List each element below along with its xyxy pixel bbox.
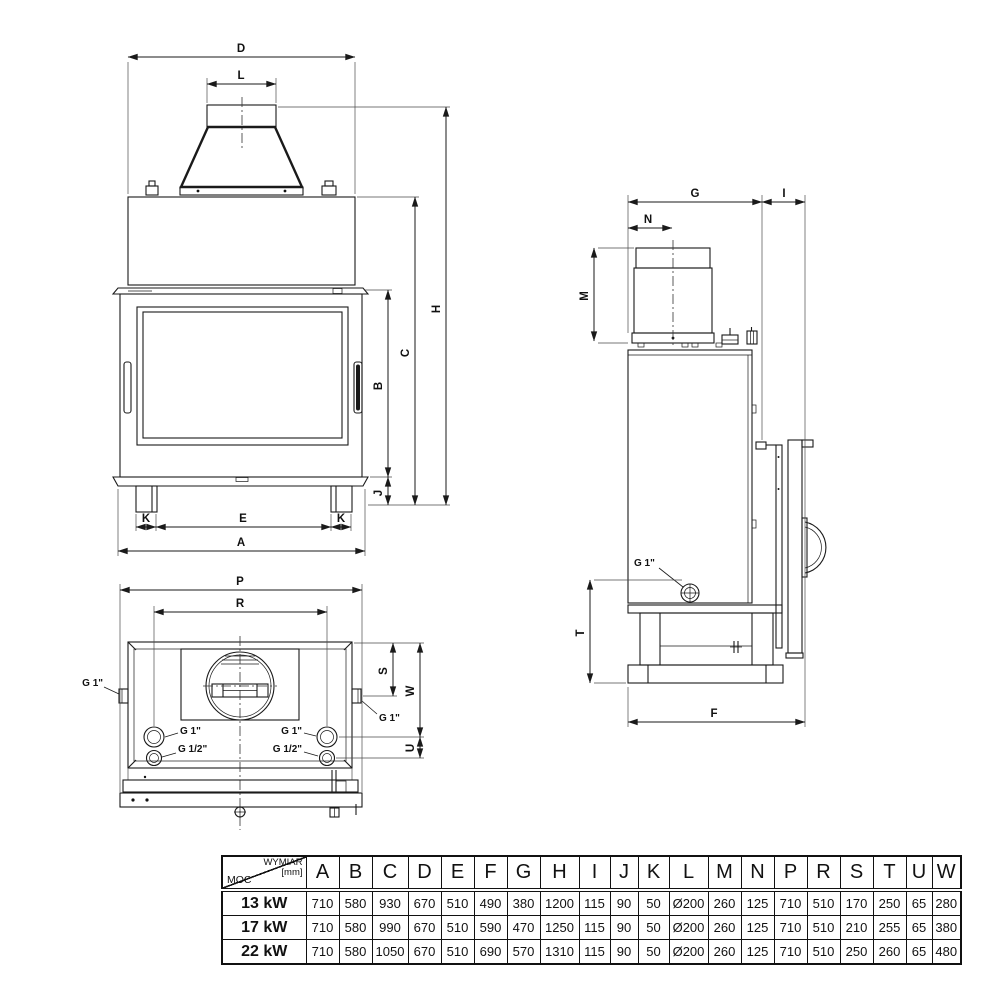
dim-value-cell: 260: [873, 940, 906, 965]
dim-value-cell: 260: [708, 940, 741, 965]
dim-label-n: N: [644, 214, 652, 226]
port-label-g1-right-outer: G 1": [379, 713, 400, 724]
dim-label-s: S: [378, 667, 390, 675]
door-side: [756, 440, 826, 658]
flue-collar-front: [207, 105, 276, 127]
dim-value-cell: Ø200: [669, 940, 708, 965]
technical-drawing-page: D L H C B J K E K A: [0, 0, 1000, 1000]
dim-label-m: M: [579, 291, 591, 301]
dim-col-header-j: J: [610, 856, 638, 890]
dim-value-cell: 930: [372, 890, 408, 916]
dim-value-cell: 710: [306, 916, 339, 940]
dim-value-cell: 510: [807, 940, 840, 965]
dimension-table: WYMIAR [mm] MOC ABCDEFGHIJKLMNPRSTUW 13 …: [221, 855, 962, 965]
dim-col-header-l: L: [669, 856, 708, 890]
port-label-g1-side: G 1": [634, 558, 655, 569]
leg-left: [136, 486, 157, 512]
top-lug-right: [322, 181, 336, 195]
power-row-label: 17 kW: [222, 916, 306, 940]
dim-value-cell: 125: [741, 940, 774, 965]
dim-label-i: I: [782, 188, 785, 200]
dim-value-cell: 580: [339, 940, 372, 965]
dim-value-cell: 125: [741, 890, 774, 916]
dim-label-k-right: K: [337, 513, 346, 525]
dim-value-cell: 250: [873, 890, 906, 916]
top-lug-left: [146, 181, 158, 195]
dim-value-cell: 1200: [540, 890, 579, 916]
top-view: G 1" G 1" G 1" G 1/2" G 1" G 1/2": [82, 576, 424, 830]
front-port-g1-left: [144, 727, 164, 747]
dim-value-cell: 380: [507, 890, 540, 916]
dim-label-c: C: [400, 349, 412, 357]
front-port-g12-right: [320, 751, 335, 766]
dim-value-cell: 510: [441, 940, 474, 965]
dim-value-cell: 710: [306, 940, 339, 965]
dim-value-cell: 990: [372, 916, 408, 940]
dim-table-row: 22 kW710580105067051069057013101159050Ø2…: [222, 940, 961, 965]
return-port-g1: [681, 584, 699, 602]
top-view-dimensions: P R S W U: [120, 576, 424, 792]
door-handle-side: [802, 518, 826, 577]
front-plate-top: [123, 780, 358, 792]
flue-funnel: [181, 127, 302, 187]
door-hinge-pin: [802, 440, 813, 447]
dim-value-cell: 65: [906, 916, 932, 940]
dim-value-cell: 90: [610, 916, 638, 940]
dim-value-cell: 260: [708, 890, 741, 916]
bottom-center-fitting: [234, 806, 246, 818]
dim-value-cell: 90: [610, 940, 638, 965]
dim-value-cell: 510: [807, 890, 840, 916]
port-label-g12-left: G 1/2": [178, 744, 207, 755]
front-view-dimensions: D L H C B J K E K A: [118, 43, 450, 556]
dim-col-header-r: R: [807, 856, 840, 890]
dim-label-r: R: [236, 598, 245, 610]
dim-value-cell: 590: [474, 916, 507, 940]
dim-value-cell: 570: [507, 940, 540, 965]
dim-value-cell: 510: [441, 916, 474, 940]
dim-col-header-u: U: [906, 856, 932, 890]
dim-label-j: J: [373, 490, 385, 496]
port-label-g1-right-inner: G 1": [281, 726, 302, 737]
leg-right: [331, 486, 352, 512]
dim-value-cell: Ø200: [669, 890, 708, 916]
dim-col-header-n: N: [741, 856, 774, 890]
dim-col-header-f: F: [474, 856, 507, 890]
dim-label-w: W: [405, 685, 417, 696]
dim-value-cell: 480: [932, 940, 961, 965]
dim-value-cell: 470: [507, 916, 540, 940]
pedestal-side: [640, 613, 773, 665]
side-view: G 1": [575, 188, 826, 727]
dim-col-header-m: M: [708, 856, 741, 890]
dim-col-header-g: G: [507, 856, 540, 890]
dim-value-cell: 510: [807, 916, 840, 940]
dim-label-k-left: K: [142, 513, 151, 525]
dim-value-cell: 710: [774, 916, 807, 940]
dim-label-t: T: [575, 629, 587, 636]
top-fitting-valve: [747, 327, 757, 344]
dim-value-cell: 170: [840, 890, 873, 916]
dim-value-cell: 250: [840, 940, 873, 965]
dim-value-cell: 490: [474, 890, 507, 916]
dim-col-header-p: P: [774, 856, 807, 890]
power-row-label: 13 kW: [222, 890, 306, 916]
dim-value-cell: 210: [840, 916, 873, 940]
front-view: D L H C B J K E K A: [113, 43, 450, 556]
plinth-side: [628, 665, 783, 683]
corner-unit-label: [mm]: [281, 867, 302, 878]
dim-value-cell: 125: [741, 916, 774, 940]
dim-table-row: 17 kW71058099067051059047012501159050Ø20…: [222, 916, 961, 940]
dim-value-cell: 65: [906, 890, 932, 916]
dim-col-header-d: D: [408, 856, 441, 890]
dim-value-cell: 115: [579, 940, 610, 965]
dim-value-cell: 510: [441, 890, 474, 916]
dim-value-cell: 280: [932, 890, 961, 916]
base-plate-side: [628, 605, 782, 613]
dim-label-a: A: [237, 537, 245, 549]
dim-label-l: L: [237, 70, 244, 82]
dim-value-cell: 690: [474, 940, 507, 965]
dim-value-cell: 710: [774, 940, 807, 965]
door-hinge-strip: [124, 362, 131, 413]
dim-col-header-k: K: [638, 856, 669, 890]
dim-value-cell: 65: [906, 940, 932, 965]
dim-table-row: 13 kW71058093067051049038012001159050Ø20…: [222, 890, 961, 916]
door-glass: [143, 312, 342, 438]
front-port-g1-right: [317, 727, 337, 747]
bottom-right-fitting: [330, 804, 356, 817]
door-frame: [120, 294, 362, 477]
door-edge-top: [120, 793, 362, 807]
drawing-sheet: D L H C B J K E K A: [0, 0, 1000, 1000]
dim-value-cell: 580: [339, 890, 372, 916]
port-label-g1-left-inner: G 1": [180, 726, 201, 737]
dim-table-body: 13 kW71058093067051049038012001159050Ø20…: [222, 890, 961, 964]
side-port-right: [352, 689, 361, 703]
port-label-g1-left-outer: G 1": [82, 678, 103, 689]
dim-value-cell: 1310: [540, 940, 579, 965]
dim-value-cell: 1050: [372, 940, 408, 965]
dim-value-cell: 115: [579, 890, 610, 916]
dim-label-f: F: [710, 708, 717, 720]
dim-value-cell: 580: [339, 916, 372, 940]
dim-value-cell: 1250: [540, 916, 579, 940]
dim-col-header-t: T: [873, 856, 906, 890]
port-label-g12-right: G 1/2": [273, 744, 302, 755]
dim-label-u: U: [405, 744, 417, 752]
dim-label-g: G: [691, 188, 700, 200]
dim-label-b: B: [373, 382, 385, 390]
dim-label-h: H: [431, 305, 443, 313]
boiler-body-front: [128, 197, 355, 285]
dim-label-d: D: [237, 43, 245, 55]
door-handle-front: [354, 362, 362, 413]
dim-value-cell: Ø200: [669, 916, 708, 940]
dim-label-e: E: [239, 513, 247, 525]
dim-col-header-e: E: [441, 856, 474, 890]
dim-value-cell: 670: [408, 890, 441, 916]
dim-label-p: P: [236, 576, 244, 588]
dim-value-cell: 710: [306, 890, 339, 916]
dim-value-cell: 50: [638, 940, 669, 965]
dim-value-cell: 90: [610, 890, 638, 916]
dim-col-header-b: B: [339, 856, 372, 890]
dim-value-cell: 50: [638, 916, 669, 940]
glass-frame: [137, 307, 348, 445]
dim-value-cell: 255: [873, 916, 906, 940]
table-corner-cell: WYMIAR [mm] MOC: [222, 856, 306, 890]
dim-value-cell: 670: [408, 916, 441, 940]
power-row-label: 22 kW: [222, 940, 306, 965]
corner-moc-label: MOC: [227, 874, 252, 886]
top-fitting-small: [722, 328, 738, 344]
dim-value-cell: 670: [408, 940, 441, 965]
dim-value-cell: 380: [932, 916, 961, 940]
dim-value-cell: 115: [579, 916, 610, 940]
dim-value-cell: 260: [708, 916, 741, 940]
dim-col-header-s: S: [840, 856, 873, 890]
dim-value-cell: 50: [638, 890, 669, 916]
dim-col-header-a: A: [306, 856, 339, 890]
front-port-g12-left: [147, 751, 162, 766]
dim-col-header-w: W: [932, 856, 961, 890]
dim-col-header-h: H: [540, 856, 579, 890]
dim-table-header-row: WYMIAR [mm] MOC ABCDEFGHIJKLMNPRSTUW: [222, 856, 961, 890]
dim-value-cell: 710: [774, 890, 807, 916]
dim-col-header-i: I: [579, 856, 610, 890]
dim-col-header-c: C: [372, 856, 408, 890]
